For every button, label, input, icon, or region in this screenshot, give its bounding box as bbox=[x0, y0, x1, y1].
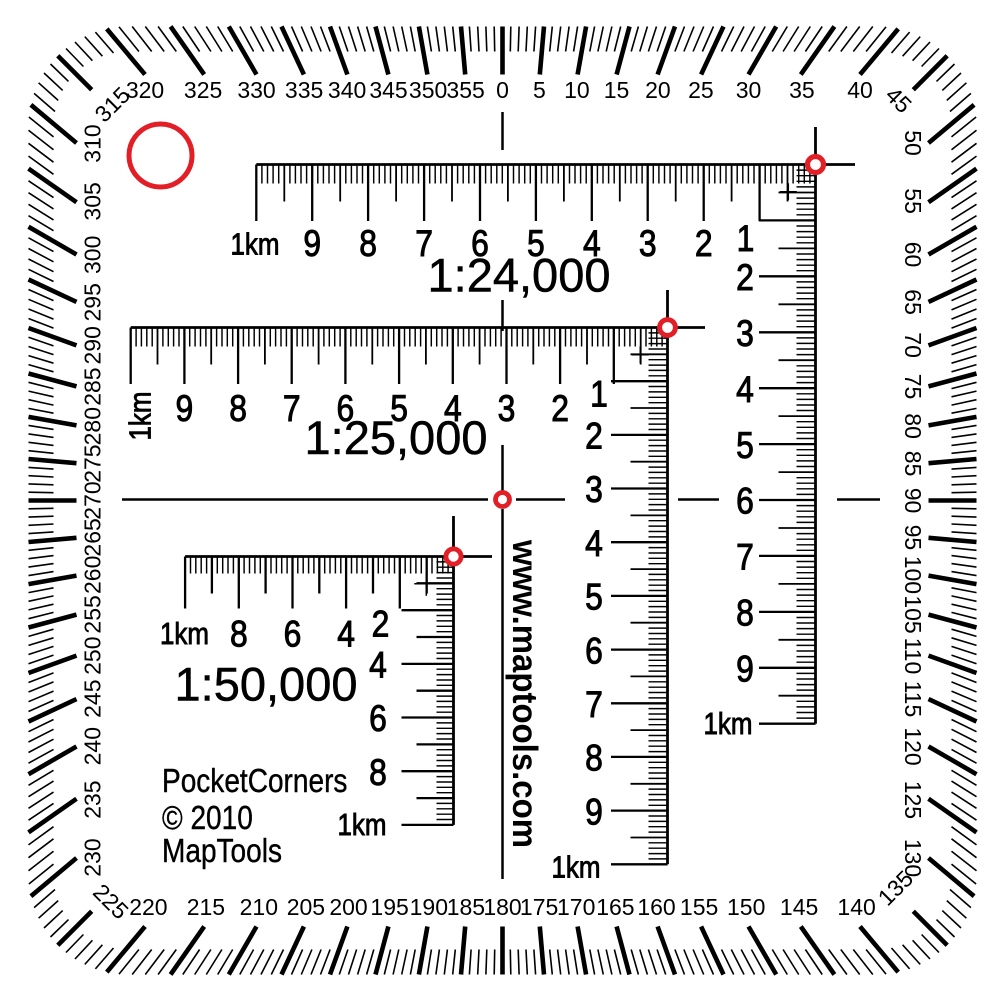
svg-text:205: 205 bbox=[287, 894, 325, 920]
svg-text:1:50,000: 1:50,000 bbox=[175, 658, 358, 711]
svg-text:265: 265 bbox=[80, 518, 106, 556]
svg-text:www.maptools.com: www.maptools.com bbox=[505, 539, 544, 848]
svg-text:190: 190 bbox=[410, 894, 448, 920]
svg-text:85: 85 bbox=[900, 451, 926, 477]
svg-text:1:25,000: 1:25,000 bbox=[305, 411, 488, 464]
svg-text:330: 330 bbox=[237, 77, 275, 103]
svg-text:7: 7 bbox=[585, 684, 603, 726]
svg-text:350: 350 bbox=[409, 77, 447, 103]
svg-text:2: 2 bbox=[551, 388, 569, 430]
svg-text:345: 345 bbox=[369, 77, 407, 103]
svg-text:9: 9 bbox=[176, 388, 194, 430]
svg-text:255: 255 bbox=[80, 595, 106, 633]
svg-text:60: 60 bbox=[900, 242, 926, 268]
svg-text:200: 200 bbox=[329, 894, 367, 920]
svg-text:300: 300 bbox=[80, 236, 106, 274]
svg-text:340: 340 bbox=[328, 77, 366, 103]
svg-text:1: 1 bbox=[737, 218, 755, 260]
svg-text:6: 6 bbox=[736, 480, 754, 522]
svg-text:1km: 1km bbox=[123, 392, 157, 441]
svg-text:7: 7 bbox=[283, 388, 301, 430]
svg-text:105: 105 bbox=[900, 595, 926, 633]
svg-text:180: 180 bbox=[483, 894, 521, 920]
svg-text:8: 8 bbox=[230, 613, 248, 655]
svg-text:240: 240 bbox=[80, 727, 106, 765]
svg-text:6: 6 bbox=[284, 613, 302, 655]
svg-text:4: 4 bbox=[337, 613, 355, 655]
svg-text:165: 165 bbox=[596, 894, 634, 920]
svg-text:65: 65 bbox=[900, 289, 926, 315]
svg-text:3: 3 bbox=[585, 469, 603, 511]
svg-text:3: 3 bbox=[498, 388, 516, 430]
svg-text:150: 150 bbox=[727, 894, 765, 920]
svg-text:2: 2 bbox=[372, 603, 390, 645]
svg-text:1: 1 bbox=[590, 373, 608, 415]
svg-text:3: 3 bbox=[736, 313, 754, 355]
svg-text:40: 40 bbox=[847, 77, 873, 103]
svg-text:70: 70 bbox=[900, 332, 926, 358]
svg-text:90: 90 bbox=[900, 488, 926, 514]
svg-text:8: 8 bbox=[736, 592, 754, 634]
svg-text:250: 250 bbox=[80, 637, 106, 675]
svg-text:185: 185 bbox=[447, 894, 485, 920]
svg-text:125: 125 bbox=[900, 781, 926, 819]
svg-text:245: 245 bbox=[80, 680, 106, 718]
svg-text:4: 4 bbox=[736, 368, 754, 410]
svg-text:30: 30 bbox=[736, 77, 762, 103]
svg-text:15: 15 bbox=[604, 77, 630, 103]
svg-text:115: 115 bbox=[900, 681, 926, 718]
svg-text:270: 270 bbox=[80, 481, 106, 519]
svg-text:25: 25 bbox=[688, 77, 714, 103]
svg-text:4: 4 bbox=[585, 522, 603, 564]
svg-text:295: 295 bbox=[80, 283, 106, 321]
svg-text:5: 5 bbox=[533, 77, 546, 103]
svg-text:325: 325 bbox=[184, 77, 222, 103]
svg-text:0: 0 bbox=[496, 77, 509, 103]
svg-text:9: 9 bbox=[303, 223, 321, 265]
svg-text:© 2010: © 2010 bbox=[162, 800, 253, 837]
svg-text:285: 285 bbox=[80, 367, 106, 405]
svg-text:1:24,000: 1:24,000 bbox=[428, 248, 611, 301]
svg-text:140: 140 bbox=[837, 894, 875, 920]
svg-text:1km: 1km bbox=[704, 706, 753, 740]
svg-text:8: 8 bbox=[229, 388, 247, 430]
svg-text:4: 4 bbox=[369, 644, 387, 686]
svg-text:5: 5 bbox=[736, 424, 754, 466]
svg-text:2: 2 bbox=[736, 257, 754, 299]
svg-text:2: 2 bbox=[585, 415, 603, 457]
svg-text:1km: 1km bbox=[338, 807, 387, 841]
svg-text:100: 100 bbox=[900, 556, 926, 594]
svg-text:20: 20 bbox=[645, 77, 671, 103]
svg-text:5: 5 bbox=[585, 576, 603, 618]
svg-text:6: 6 bbox=[585, 630, 603, 672]
svg-text:55: 55 bbox=[900, 188, 926, 214]
svg-text:8: 8 bbox=[585, 737, 603, 779]
svg-text:1km: 1km bbox=[552, 849, 601, 883]
svg-text:80: 80 bbox=[900, 413, 926, 439]
svg-text:170: 170 bbox=[557, 894, 595, 920]
svg-text:9: 9 bbox=[736, 648, 754, 690]
svg-text:7: 7 bbox=[736, 536, 754, 578]
svg-text:195: 195 bbox=[370, 894, 408, 920]
svg-text:305: 305 bbox=[80, 182, 106, 220]
svg-text:8: 8 bbox=[359, 223, 377, 265]
svg-text:155: 155 bbox=[680, 894, 718, 920]
svg-text:355: 355 bbox=[446, 77, 484, 103]
svg-text:310: 310 bbox=[80, 124, 106, 162]
svg-text:6: 6 bbox=[369, 698, 387, 740]
svg-text:275: 275 bbox=[80, 444, 106, 482]
svg-text:235: 235 bbox=[80, 780, 106, 818]
svg-text:145: 145 bbox=[780, 894, 818, 920]
svg-text:175: 175 bbox=[520, 894, 558, 920]
svg-text:210: 210 bbox=[240, 894, 278, 920]
svg-text:PocketCorners: PocketCorners bbox=[162, 763, 347, 800]
svg-text:260: 260 bbox=[80, 556, 106, 594]
svg-text:280: 280 bbox=[80, 407, 106, 445]
svg-text:2: 2 bbox=[695, 223, 713, 265]
svg-text:75: 75 bbox=[900, 374, 926, 400]
svg-text:35: 35 bbox=[789, 77, 815, 103]
svg-text:50: 50 bbox=[900, 130, 926, 156]
svg-text:320: 320 bbox=[126, 77, 164, 103]
svg-text:9: 9 bbox=[585, 791, 603, 833]
svg-text:220: 220 bbox=[129, 894, 167, 920]
svg-text:10: 10 bbox=[564, 77, 590, 103]
svg-text:230: 230 bbox=[80, 838, 106, 876]
svg-text:120: 120 bbox=[900, 727, 926, 765]
svg-text:MapTools: MapTools bbox=[162, 833, 282, 870]
svg-text:1km: 1km bbox=[231, 227, 280, 261]
svg-text:110: 110 bbox=[900, 638, 926, 675]
svg-text:95: 95 bbox=[900, 525, 926, 551]
svg-text:8: 8 bbox=[369, 751, 387, 793]
svg-text:215: 215 bbox=[187, 894, 225, 920]
svg-text:290: 290 bbox=[80, 326, 106, 364]
svg-text:3: 3 bbox=[639, 223, 657, 265]
svg-text:335: 335 bbox=[285, 77, 323, 103]
svg-text:1km: 1km bbox=[160, 616, 209, 650]
svg-text:160: 160 bbox=[637, 894, 675, 920]
